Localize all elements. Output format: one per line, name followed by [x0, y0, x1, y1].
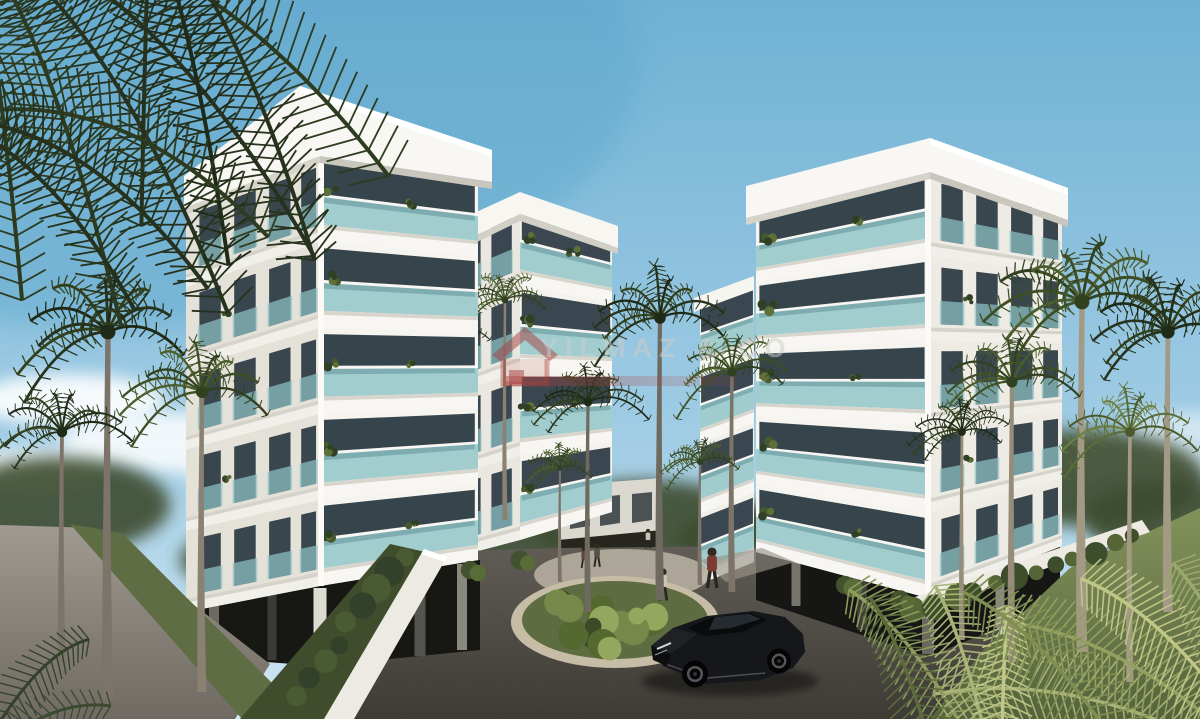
scene-svg: [0, 0, 1200, 719]
architectural-render-image: YILMAZ & CO: [0, 0, 1200, 719]
